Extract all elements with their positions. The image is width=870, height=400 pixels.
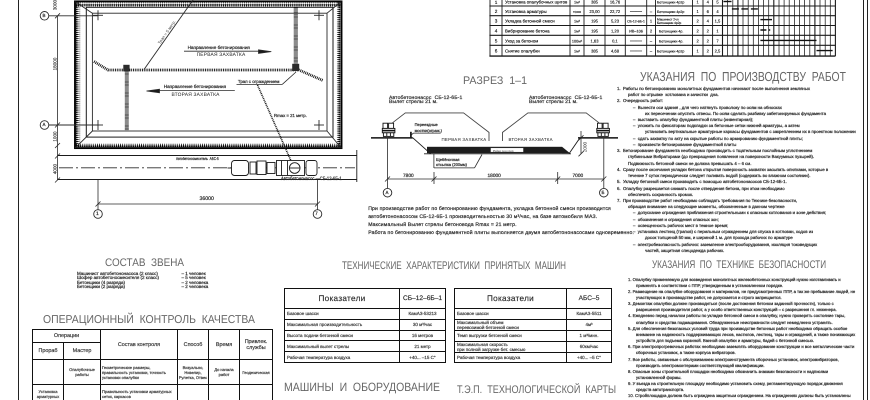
- svg-text:1000: 1000: [53, 131, 58, 142]
- svg-text:0,1: 0,1: [612, 38, 618, 43]
- svg-text:2,5: 2,5: [715, 49, 721, 54]
- svg-text:7: 7: [716, 38, 719, 43]
- svg-text:5: 5: [716, 0, 719, 5]
- svg-text:–: –: [650, 9, 653, 14]
- svg-text:385: 385: [591, 49, 599, 54]
- svg-text:1: 1: [697, 0, 700, 5]
- svg-text:4: 4: [707, 19, 710, 24]
- svg-text:23,00: 23,00: [589, 9, 600, 14]
- svg-text:5: 5: [495, 38, 498, 43]
- svg-text:2: 2: [495, 9, 498, 14]
- svg-text:195: 195: [591, 28, 599, 33]
- svg-text:Бетонщики 4р2р: Бетонщики 4р2р: [657, 0, 684, 4]
- svg-text:2: 2: [650, 28, 653, 33]
- svg-text:Установка арматуры: Установка арматуры: [505, 9, 547, 14]
- svg-text:Бетонщики 4р2р: Бетонщики 4р2р: [657, 10, 684, 14]
- svg-text:1,5: 1,5: [715, 19, 721, 24]
- svg-text:1: 1: [697, 9, 700, 14]
- svg-text:100м²: 100м²: [572, 39, 583, 43]
- svg-text:22,72: 22,72: [610, 9, 621, 14]
- svg-text:4,68: 4,68: [611, 49, 620, 54]
- svg-text:Бетонщики 4р.: Бетонщики 4р.: [659, 39, 683, 43]
- svg-text:1м³: 1м³: [574, 20, 581, 24]
- svg-text:5,23: 5,23: [611, 19, 620, 24]
- svg-text:2: 2: [707, 28, 710, 33]
- svg-text:4: 4: [495, 28, 498, 33]
- svg-text:–: –: [650, 38, 653, 43]
- svg-text:3: 3: [495, 19, 498, 24]
- svg-text:–: –: [650, 49, 653, 54]
- svg-text:4000: 4000: [53, 163, 58, 174]
- svg-text:ИВ–106: ИВ–106: [629, 29, 643, 33]
- svg-text:2: 2: [697, 28, 700, 33]
- svg-text:1м²: 1м²: [574, 1, 581, 5]
- svg-text:6: 6: [707, 9, 710, 14]
- svg-text:Уход за бетоном: Уход за бетоном: [505, 38, 538, 43]
- svg-text:СБ-12-6Б-1: СБ-12-6Б-1: [627, 20, 645, 24]
- svg-text:Бетонщики 4р2р: Бетонщики 4р2р: [657, 50, 684, 54]
- svg-text:1: 1: [495, 0, 498, 5]
- svg-text:2000: 2000: [583, 141, 588, 152]
- svg-text:6: 6: [495, 49, 498, 54]
- svg-text:1м²: 1м²: [574, 50, 581, 54]
- svg-text:Вибрирование бетона: Вибрирование бетона: [505, 28, 550, 33]
- svg-text:1,63: 1,63: [591, 38, 600, 43]
- svg-text:2: 2: [707, 49, 710, 54]
- svg-text:тонн: тонн: [573, 10, 581, 14]
- svg-text:——: ——: [630, 38, 642, 44]
- svg-text:4: 4: [716, 9, 719, 14]
- svg-text:2: 2: [697, 19, 700, 24]
- svg-text:1,20: 1,20: [611, 28, 620, 33]
- svg-text:——: ——: [630, 9, 642, 15]
- svg-text:16,76: 16,76: [610, 0, 621, 5]
- svg-text:1м³: 1м³: [574, 29, 581, 33]
- svg-text:1: 1: [697, 49, 700, 54]
- svg-text:195: 195: [591, 19, 599, 24]
- svg-text:Укладка бетонной смеси: Укладка бетонной смеси: [505, 19, 555, 24]
- svg-text:2: 2: [697, 38, 700, 43]
- svg-text:1: 1: [716, 28, 719, 33]
- svg-text:2: 2: [707, 38, 710, 43]
- svg-text:——: ——: [630, 49, 642, 55]
- svg-text:Бетонщики 4р2р: Бетонщики 4р2р: [657, 21, 681, 25]
- svg-text:Установка опалубочных щитов: Установка опалубочных щитов: [505, 0, 568, 5]
- svg-text:Снятие опалубки: Снятие опалубки: [505, 49, 540, 54]
- svg-text:1: 1: [650, 19, 653, 24]
- svg-text:385: 385: [591, 0, 599, 5]
- svg-text:Бетонщики 4р.: Бетонщики 4р.: [659, 29, 683, 33]
- svg-text:4: 4: [707, 0, 710, 5]
